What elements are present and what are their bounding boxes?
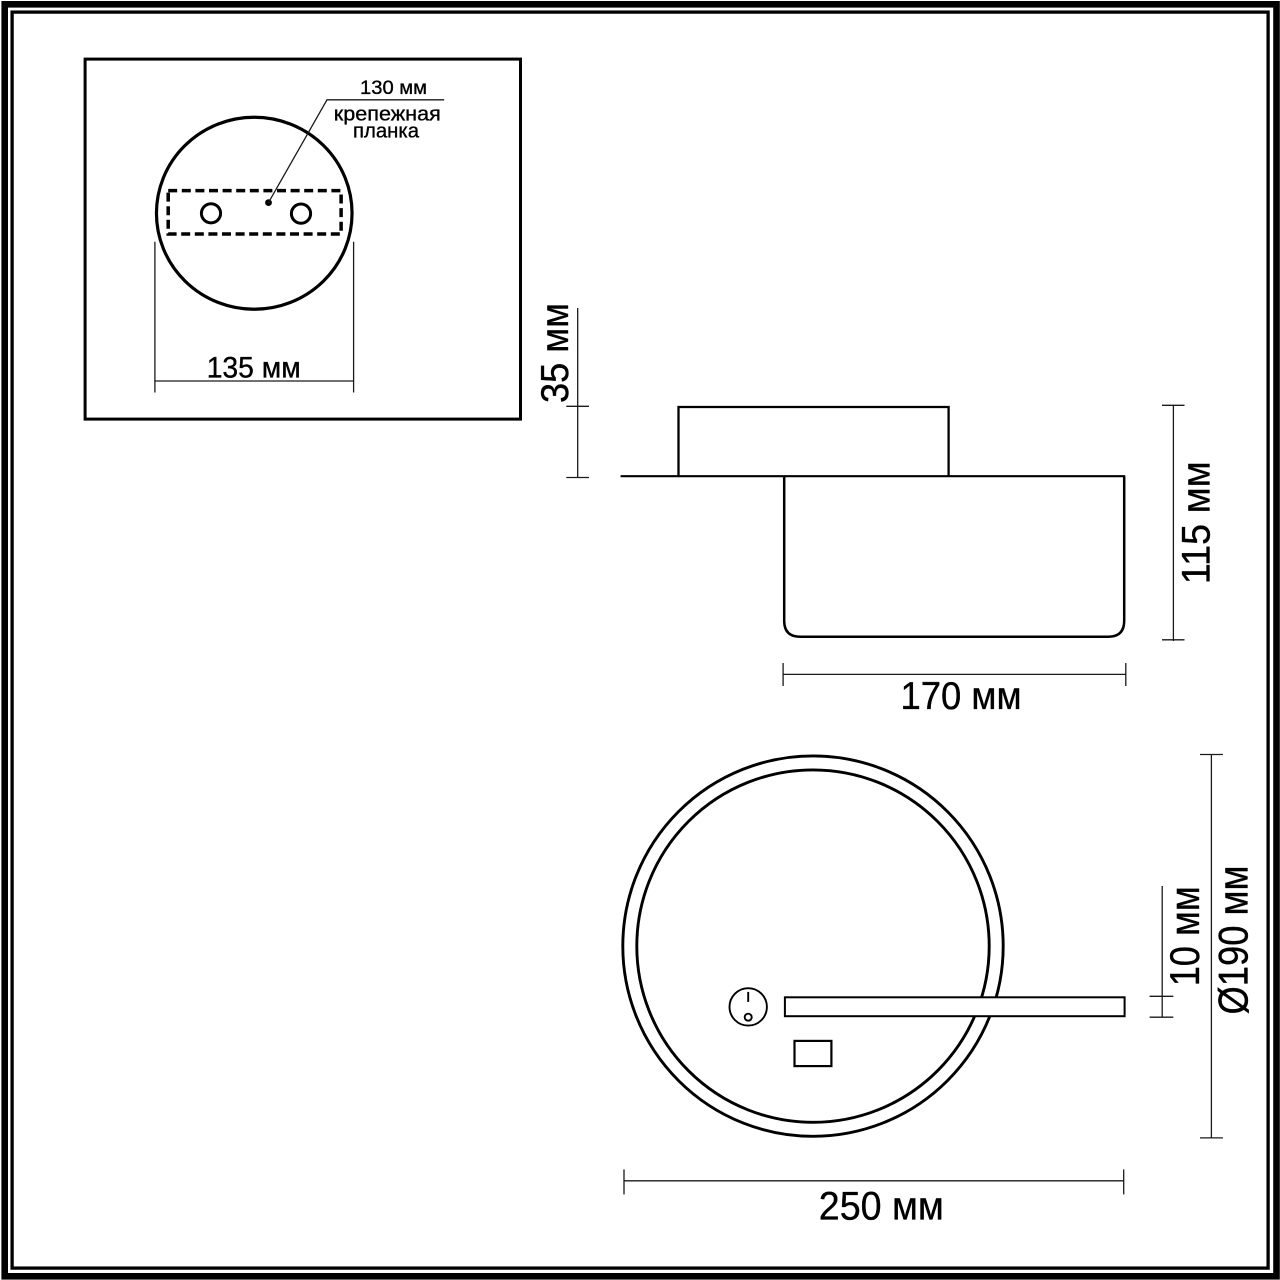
- svg-text:250 мм: 250 мм: [819, 1185, 944, 1229]
- svg-text:135 мм: 135 мм: [207, 351, 301, 384]
- svg-text:35 мм: 35 мм: [534, 303, 577, 403]
- svg-text:170 мм: 170 мм: [901, 675, 1022, 718]
- svg-text:130 мм: 130 мм: [360, 77, 427, 99]
- svg-text:10 мм: 10 мм: [1161, 886, 1208, 986]
- svg-text:планка: планка: [353, 120, 420, 143]
- svg-text:Ø190 мм: Ø190 мм: [1210, 866, 1257, 1015]
- svg-text:115 мм: 115 мм: [1175, 461, 1219, 584]
